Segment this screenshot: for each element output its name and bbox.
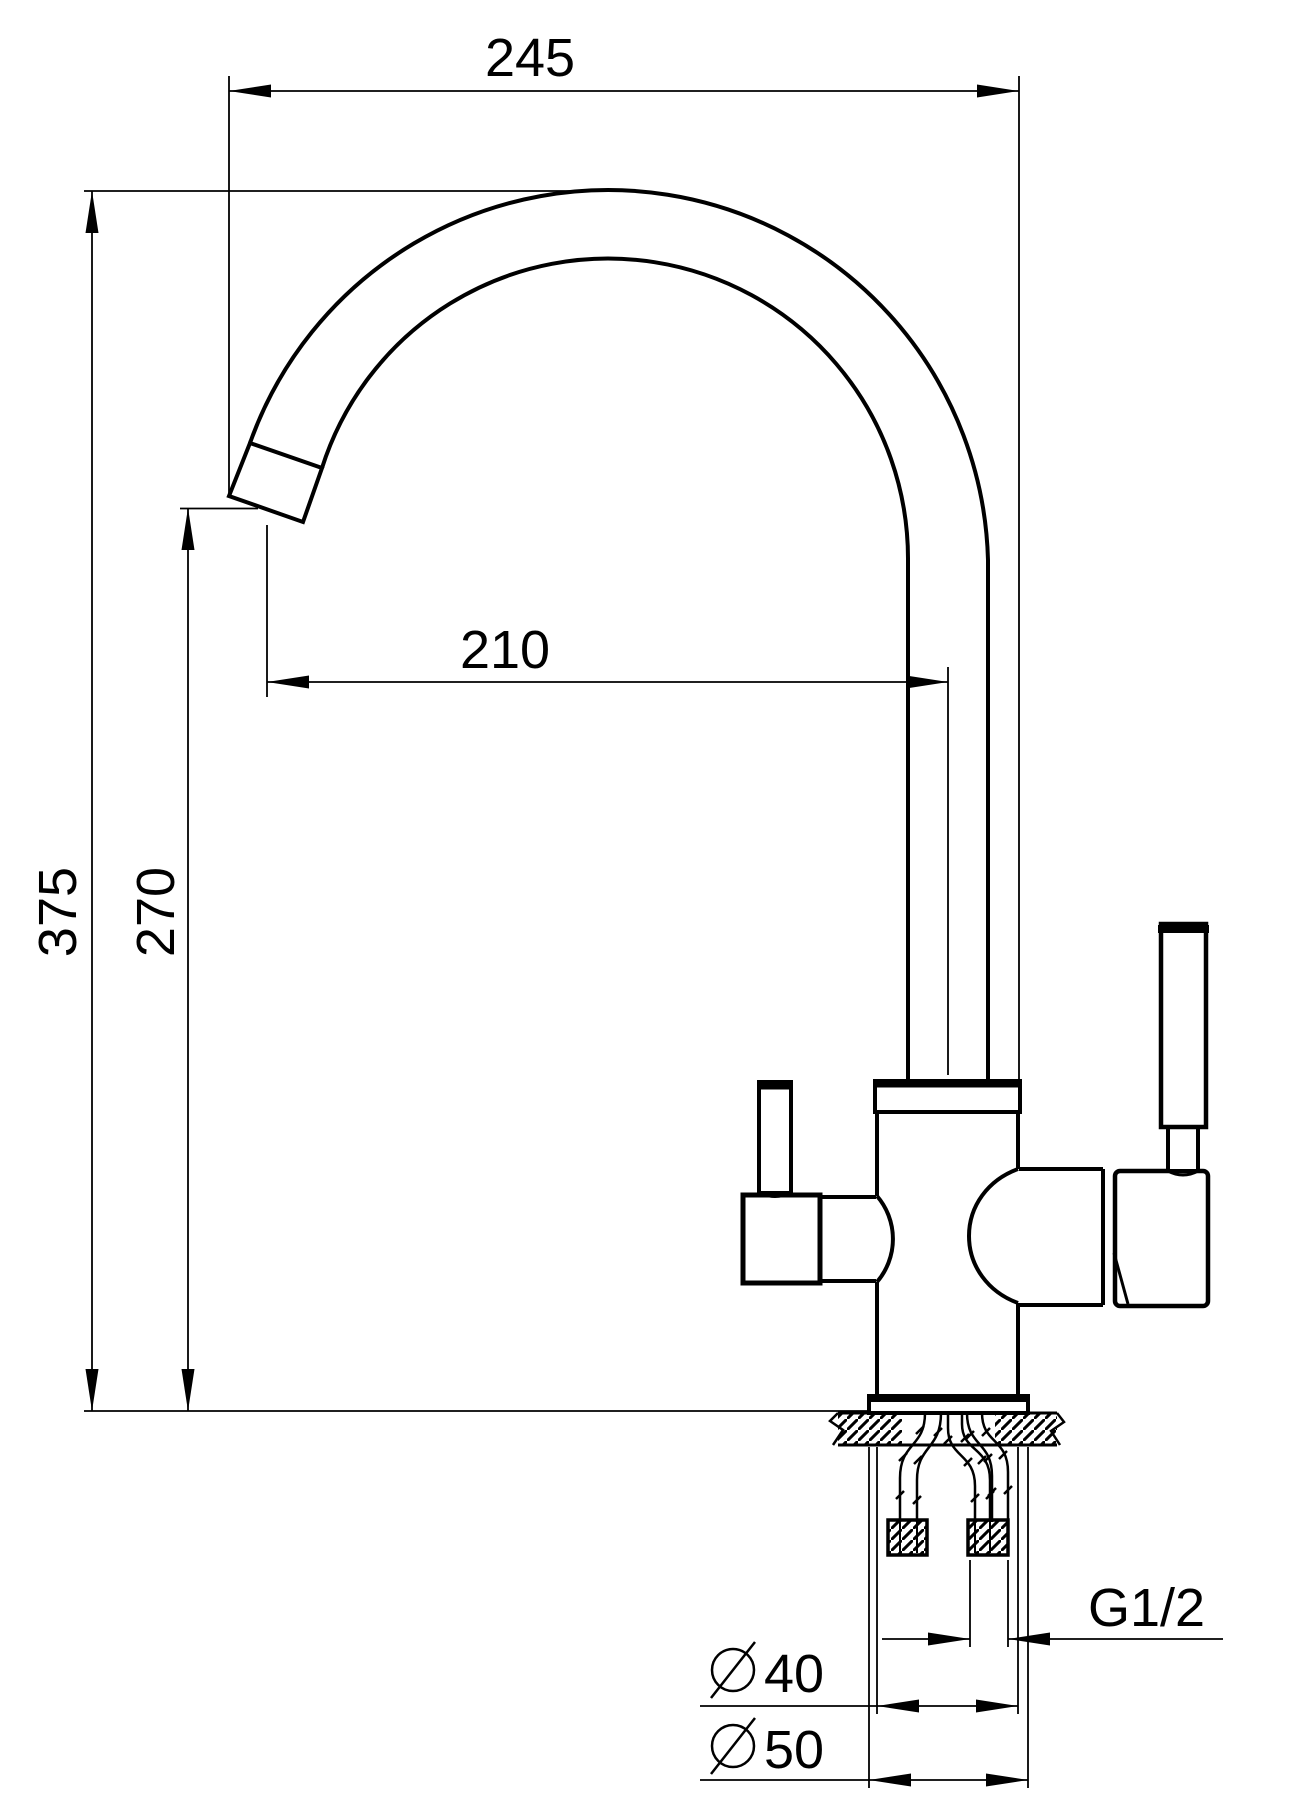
right-valve-cone [1019, 1169, 1103, 1305]
faucet-outline [229, 190, 1209, 1413]
hose-braiding-ticks [896, 1426, 1012, 1504]
dim-245-label: 245 [485, 28, 575, 88]
right-handle-housing [1115, 1171, 1208, 1306]
dim-50-label: 50 [764, 1720, 824, 1780]
left-handle-base [743, 1195, 820, 1283]
supply-hoses [896, 1413, 1012, 1522]
right-handle-stem [1168, 1127, 1198, 1171]
spout-tip-cap [229, 443, 322, 522]
spout-inner-arc [322, 259, 908, 560]
right-handle-lever [1161, 924, 1206, 1127]
dimension-spout-reach: 210 [267, 620, 948, 689]
left-handle-lever [759, 1082, 791, 1193]
dim-375-label: 375 [28, 867, 88, 957]
dimension-overall-width: 245 [229, 28, 1019, 98]
dim-270-label: 270 [126, 867, 186, 957]
diameter-symbol-40 [711, 1642, 755, 1698]
diameter-symbol-50 [711, 1718, 755, 1774]
dimension-base-diameter: 50 [700, 1718, 1028, 1787]
spout-outer-arc [250, 190, 988, 560]
hose-fittings [888, 1520, 1008, 1555]
dim-g12-label: G1/2 [1088, 1578, 1205, 1638]
drawing-sheet: 245 375 270 210 [0, 0, 1296, 1800]
dimension-overall-height: 375 [28, 191, 99, 1411]
main-body [877, 1112, 1018, 1396]
dimension-thread: G1/2 [882, 1578, 1223, 1646]
faucet-technical-drawing: 245 375 270 210 [0, 0, 1296, 1800]
dim-210-label: 210 [460, 620, 550, 680]
dim-40-label: 40 [764, 1644, 824, 1704]
dimension-body-diameter: 40 [700, 1642, 1018, 1713]
left-valve-connector [820, 1197, 876, 1281]
dimension-spout-height: 270 [126, 508, 195, 1411]
